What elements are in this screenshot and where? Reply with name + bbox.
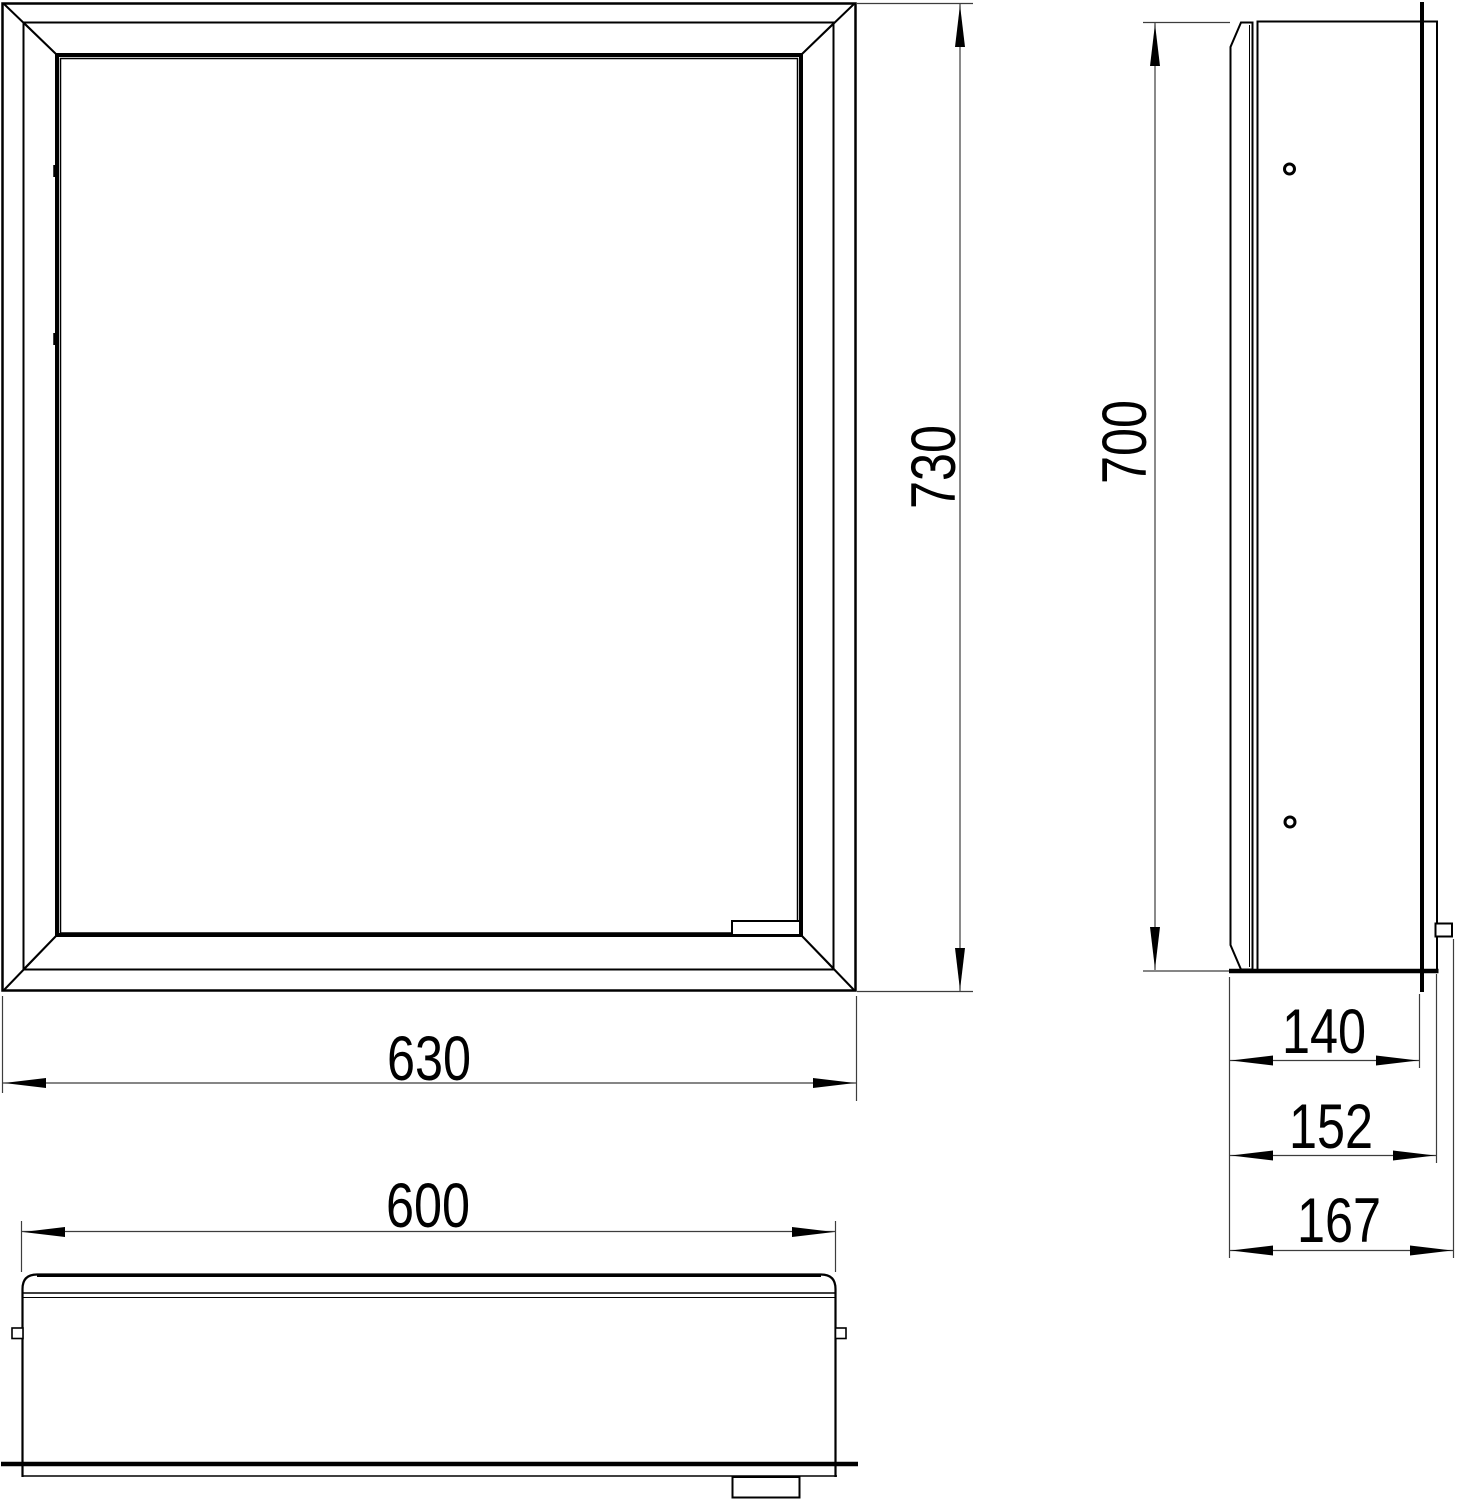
door-handle-side	[1436, 924, 1453, 937]
door-handle-bottom	[733, 1477, 800, 1498]
drawing-svg: 730 630 700	[0, 0, 1457, 1500]
mounting-hole-upper	[1285, 164, 1295, 174]
side-cabinet-box	[1258, 22, 1438, 972]
dim-label-front-height: 730	[899, 425, 970, 509]
mitre-bottom-right	[802, 936, 854, 990]
front-mirror-door	[61, 59, 798, 934]
arrow-700-up	[1150, 24, 1160, 66]
arrow-600-right	[792, 1227, 834, 1237]
dim-label-side-height: 700	[1090, 400, 1161, 484]
mitre-top-right	[802, 4, 854, 54]
bottom-view-dimensions: 600	[22, 1171, 836, 1272]
arrow-630-right	[813, 1078, 855, 1088]
dim-label-depth-box: 140	[1282, 997, 1366, 1068]
dim-label-depth-frame: 152	[1289, 1092, 1373, 1163]
bottom-box-outline	[23, 1275, 836, 1478]
arrow-730-up	[955, 5, 965, 47]
arrow-700-down	[1150, 927, 1160, 969]
arrow-600-left	[23, 1227, 65, 1237]
dim-label-depth-total: 167	[1297, 1186, 1381, 1257]
mounting-hole-lower	[1285, 817, 1295, 827]
dim-label-bottom-width: 600	[386, 1171, 470, 1242]
mounting-clip-right	[836, 1328, 847, 1339]
arrow-730-down	[955, 948, 965, 990]
arrow-630-left	[4, 1078, 46, 1088]
bottom-view	[1, 1275, 858, 1498]
arrow-167-right	[1410, 1246, 1452, 1256]
mitre-bottom-left	[4, 936, 56, 990]
dim-label-front-width: 630	[387, 1024, 471, 1095]
mounting-clip-left	[12, 1328, 23, 1339]
front-outer-frame	[3, 4, 856, 991]
front-view	[3, 4, 856, 991]
arrow-140-left	[1231, 1056, 1273, 1066]
arrow-152-left	[1231, 1151, 1273, 1161]
arrow-152-right	[1393, 1151, 1435, 1161]
door-handle-front	[732, 921, 800, 935]
side-view	[1229, 2, 1452, 992]
mitre-top-left	[4, 4, 56, 54]
front-frame-step	[24, 23, 834, 970]
arrow-167-left	[1231, 1246, 1273, 1256]
arrow-140-right	[1376, 1056, 1418, 1066]
front-frame-opening	[57, 55, 801, 935]
technical-drawing-page: 730 630 700	[0, 0, 1457, 1500]
